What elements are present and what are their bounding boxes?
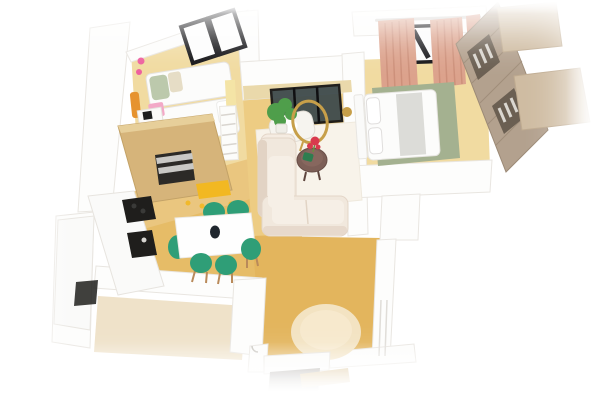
floor-plan-canvas <box>0 0 600 400</box>
dining-chair-right <box>241 238 261 260</box>
pink-decal-1 <box>138 58 145 65</box>
bed-pillow-1 <box>366 97 381 124</box>
burner-2 <box>141 209 146 214</box>
cooktop <box>122 196 156 223</box>
wardrobe-side-panel-2 <box>514 68 590 130</box>
wall-bedroom-bottom-2 <box>380 194 420 240</box>
lower-cabinet-left <box>54 216 94 330</box>
black-appliance-panel <box>74 280 98 306</box>
sink <box>127 230 157 258</box>
gray-blanket <box>396 92 426 156</box>
dining-chair-bottom-2 <box>215 255 237 275</box>
burner-1 <box>132 204 137 209</box>
curtain-left <box>378 18 418 93</box>
brass-wall-decor <box>342 107 352 117</box>
pillow-green <box>149 74 171 101</box>
faucet <box>142 238 147 243</box>
wall-bath-hall <box>230 278 266 356</box>
plant-pot <box>276 124 287 133</box>
bed-pillow-2 <box>368 127 383 154</box>
floor-bathroom <box>94 296 246 360</box>
wall-child-left <box>78 22 130 212</box>
wall-bedroom-bottom <box>348 160 492 198</box>
floor-plan-render <box>0 0 600 400</box>
black-vase <box>210 226 220 239</box>
dining-chair-bottom-1 <box>190 253 212 273</box>
double-bed <box>354 89 440 161</box>
round-rug-inner <box>300 310 352 350</box>
living-room <box>256 85 362 236</box>
pink-decal-2 <box>136 69 142 75</box>
laptop <box>142 111 152 120</box>
sofa-chaise-shadow <box>263 226 347 235</box>
wardrobe-side-panel-1 <box>497 2 562 52</box>
